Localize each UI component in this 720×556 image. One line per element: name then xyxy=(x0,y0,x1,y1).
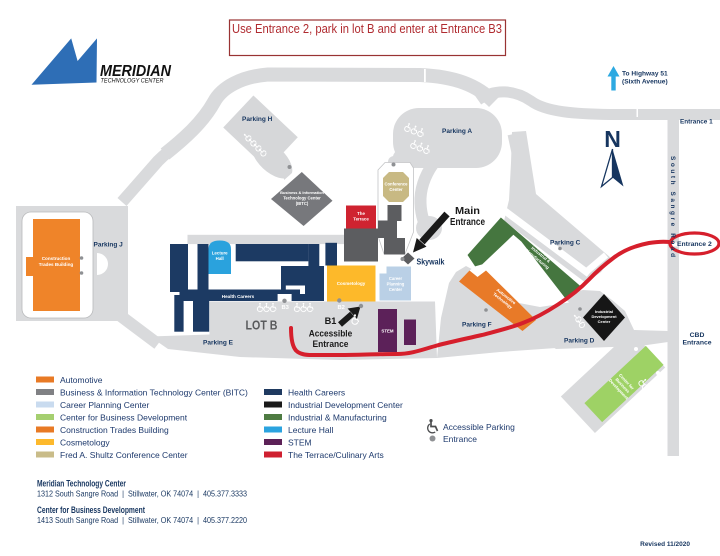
svg-text:B2: B2 xyxy=(338,305,345,311)
svg-text:Entrance 2: Entrance 2 xyxy=(677,241,712,248)
svg-text:Parking E: Parking E xyxy=(203,340,234,347)
svg-text:Accessible: Accessible xyxy=(309,329,353,339)
svg-text:Center: Center xyxy=(389,287,403,292)
svg-text:Fred A. Shultz Conference Cent: Fred A. Shultz Conference Center xyxy=(60,450,188,460)
svg-text:MERIDIAN: MERIDIAN xyxy=(100,63,171,80)
svg-text:The Terrace/Culinary Arts: The Terrace/Culinary Arts xyxy=(288,450,384,460)
svg-text:B3: B3 xyxy=(282,305,290,311)
svg-text:Trades Building: Trades Building xyxy=(39,262,74,267)
svg-text:N: N xyxy=(604,126,621,152)
svg-text:Revised 11/2020: Revised 11/2020 xyxy=(640,541,690,548)
svg-text:Career Planning Center: Career Planning Center xyxy=(60,400,149,410)
svg-text:To Highway 51: To Highway 51 xyxy=(622,71,668,78)
svg-text:Parking F: Parking F xyxy=(462,322,492,329)
svg-text:Parking D: Parking D xyxy=(564,338,595,345)
svg-text:Entrance: Entrance xyxy=(682,340,711,347)
svg-text:Health Careers: Health Careers xyxy=(222,294,255,299)
svg-text:Career: Career xyxy=(389,276,403,281)
svg-text:Cosmetology: Cosmetology xyxy=(60,438,110,448)
svg-text:Parking H: Parking H xyxy=(242,116,273,123)
svg-text:Health Careers: Health Careers xyxy=(288,388,345,398)
svg-text:Entrance: Entrance xyxy=(450,217,485,228)
svg-text:Lecture: Lecture xyxy=(212,251,228,256)
svg-text:(Sixth Avenue): (Sixth Avenue) xyxy=(622,79,668,86)
svg-text:Accessible Parking: Accessible Parking xyxy=(443,422,515,432)
svg-text:1312 South Sangre Road | Sti: 1312 South Sangre Road | Stillwater, OK … xyxy=(37,489,247,499)
svg-text:Entrance: Entrance xyxy=(313,339,349,349)
svg-text:Technology Center: Technology Center xyxy=(283,196,321,201)
svg-text:Construction Trades Building: Construction Trades Building xyxy=(60,425,169,435)
svg-text:Skywalk: Skywalk xyxy=(417,258,445,267)
svg-text:STEM: STEM xyxy=(381,329,394,334)
svg-text:Industrial Development Center: Industrial Development Center xyxy=(288,400,403,410)
svg-text:Main: Main xyxy=(455,206,480,217)
svg-text:Business & Information Technol: Business & Information Technology Center… xyxy=(60,388,248,398)
svg-text:Automotive: Automotive xyxy=(60,375,103,385)
svg-text:B1: B1 xyxy=(325,316,337,326)
svg-text:CBD: CBD xyxy=(690,332,705,339)
svg-text:South Sangre Road: South Sangre Road xyxy=(669,156,676,257)
svg-text:Entrance: Entrance xyxy=(443,434,477,444)
svg-text:Use Entrance 2, park in lot B: Use Entrance 2, park in lot B and enter … xyxy=(232,21,502,36)
svg-text:Center: Center xyxy=(598,319,611,324)
svg-text:Parking A: Parking A xyxy=(442,128,472,135)
svg-text:Parking C: Parking C xyxy=(550,240,581,247)
svg-text:Conference: Conference xyxy=(384,182,408,187)
svg-text:Business & Information: Business & Information xyxy=(280,190,324,195)
svg-text:TECHNOLOGY CENTER: TECHNOLOGY CENTER xyxy=(101,79,165,85)
svg-text:Center for Business Developmen: Center for Business Development xyxy=(37,505,145,515)
svg-text:Planning: Planning xyxy=(387,282,405,287)
svg-text:Center for Business Developmen: Center for Business Development xyxy=(60,413,188,423)
svg-text:Construction: Construction xyxy=(42,256,71,261)
svg-text:The: The xyxy=(357,211,365,216)
svg-text:STEM: STEM xyxy=(288,438,312,448)
svg-text:Lecture Hall: Lecture Hall xyxy=(288,425,333,435)
svg-text:Meridian Technology Center: Meridian Technology Center xyxy=(37,479,126,489)
svg-text:(BITC): (BITC) xyxy=(296,201,309,206)
svg-text:1413 South Sangre Road | Sti: 1413 South Sangre Road | Stillwater, OK … xyxy=(37,515,247,525)
svg-text:Center: Center xyxy=(389,187,403,192)
svg-text:LOT B: LOT B xyxy=(246,318,278,333)
svg-text:Hall: Hall xyxy=(216,256,224,261)
svg-text:Parking J: Parking J xyxy=(94,242,124,249)
svg-text:Industrial & Manufacturing: Industrial & Manufacturing xyxy=(288,413,387,423)
svg-text:Entrance 1: Entrance 1 xyxy=(680,119,713,126)
svg-text:Cosmetology: Cosmetology xyxy=(337,281,366,286)
svg-text:Terrace: Terrace xyxy=(353,217,369,222)
